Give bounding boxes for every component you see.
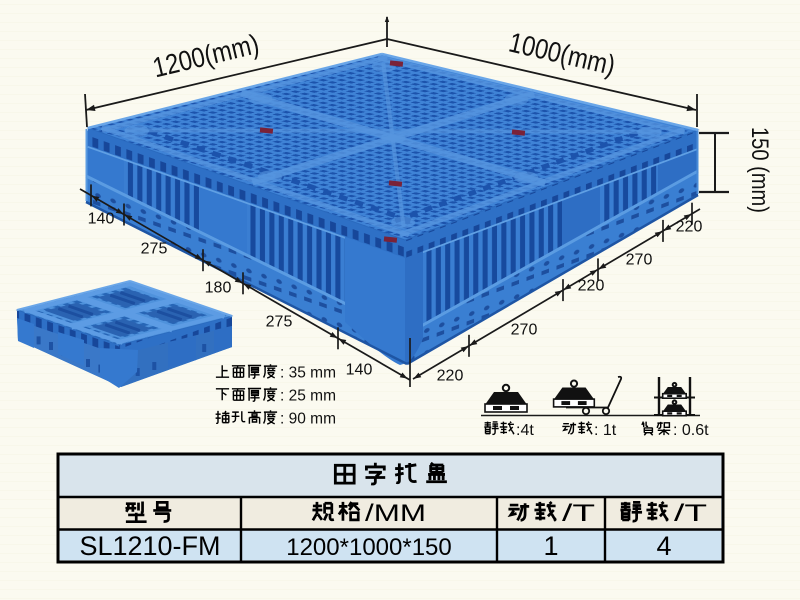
svg-text:4: 4	[656, 531, 671, 561]
svg-text:SL1210-FM: SL1210-FM	[79, 531, 220, 561]
svg-text:140: 140	[346, 362, 373, 379]
svg-text:150 (mm): 150 (mm)	[746, 127, 773, 213]
svg-text:220: 220	[437, 368, 464, 385]
svg-text:/MM: /MM	[365, 500, 426, 527]
svg-text:275: 275	[266, 314, 293, 331]
svg-text:: 90 mm: : 90 mm	[280, 411, 336, 428]
svg-text:: 35 mm: : 35 mm	[280, 365, 336, 382]
svg-text:1200*1000*150: 1200*1000*150	[286, 534, 452, 561]
svg-text:270: 270	[626, 252, 653, 269]
svg-text:: 1t: : 1t	[594, 422, 617, 439]
svg-text::4t: :4t	[516, 422, 534, 439]
svg-text:180: 180	[205, 280, 232, 297]
svg-text:140: 140	[88, 211, 115, 228]
svg-text:1: 1	[543, 531, 558, 561]
svg-text:/T: /T	[562, 500, 596, 527]
svg-text:270: 270	[511, 322, 538, 339]
svg-text:220: 220	[676, 219, 703, 236]
svg-text:220: 220	[578, 278, 605, 295]
svg-text:275: 275	[141, 241, 168, 258]
svg-text:: 0.6t: : 0.6t	[673, 422, 709, 439]
svg-text:: 25 mm: : 25 mm	[280, 388, 336, 405]
svg-text:/T: /T	[674, 500, 708, 527]
